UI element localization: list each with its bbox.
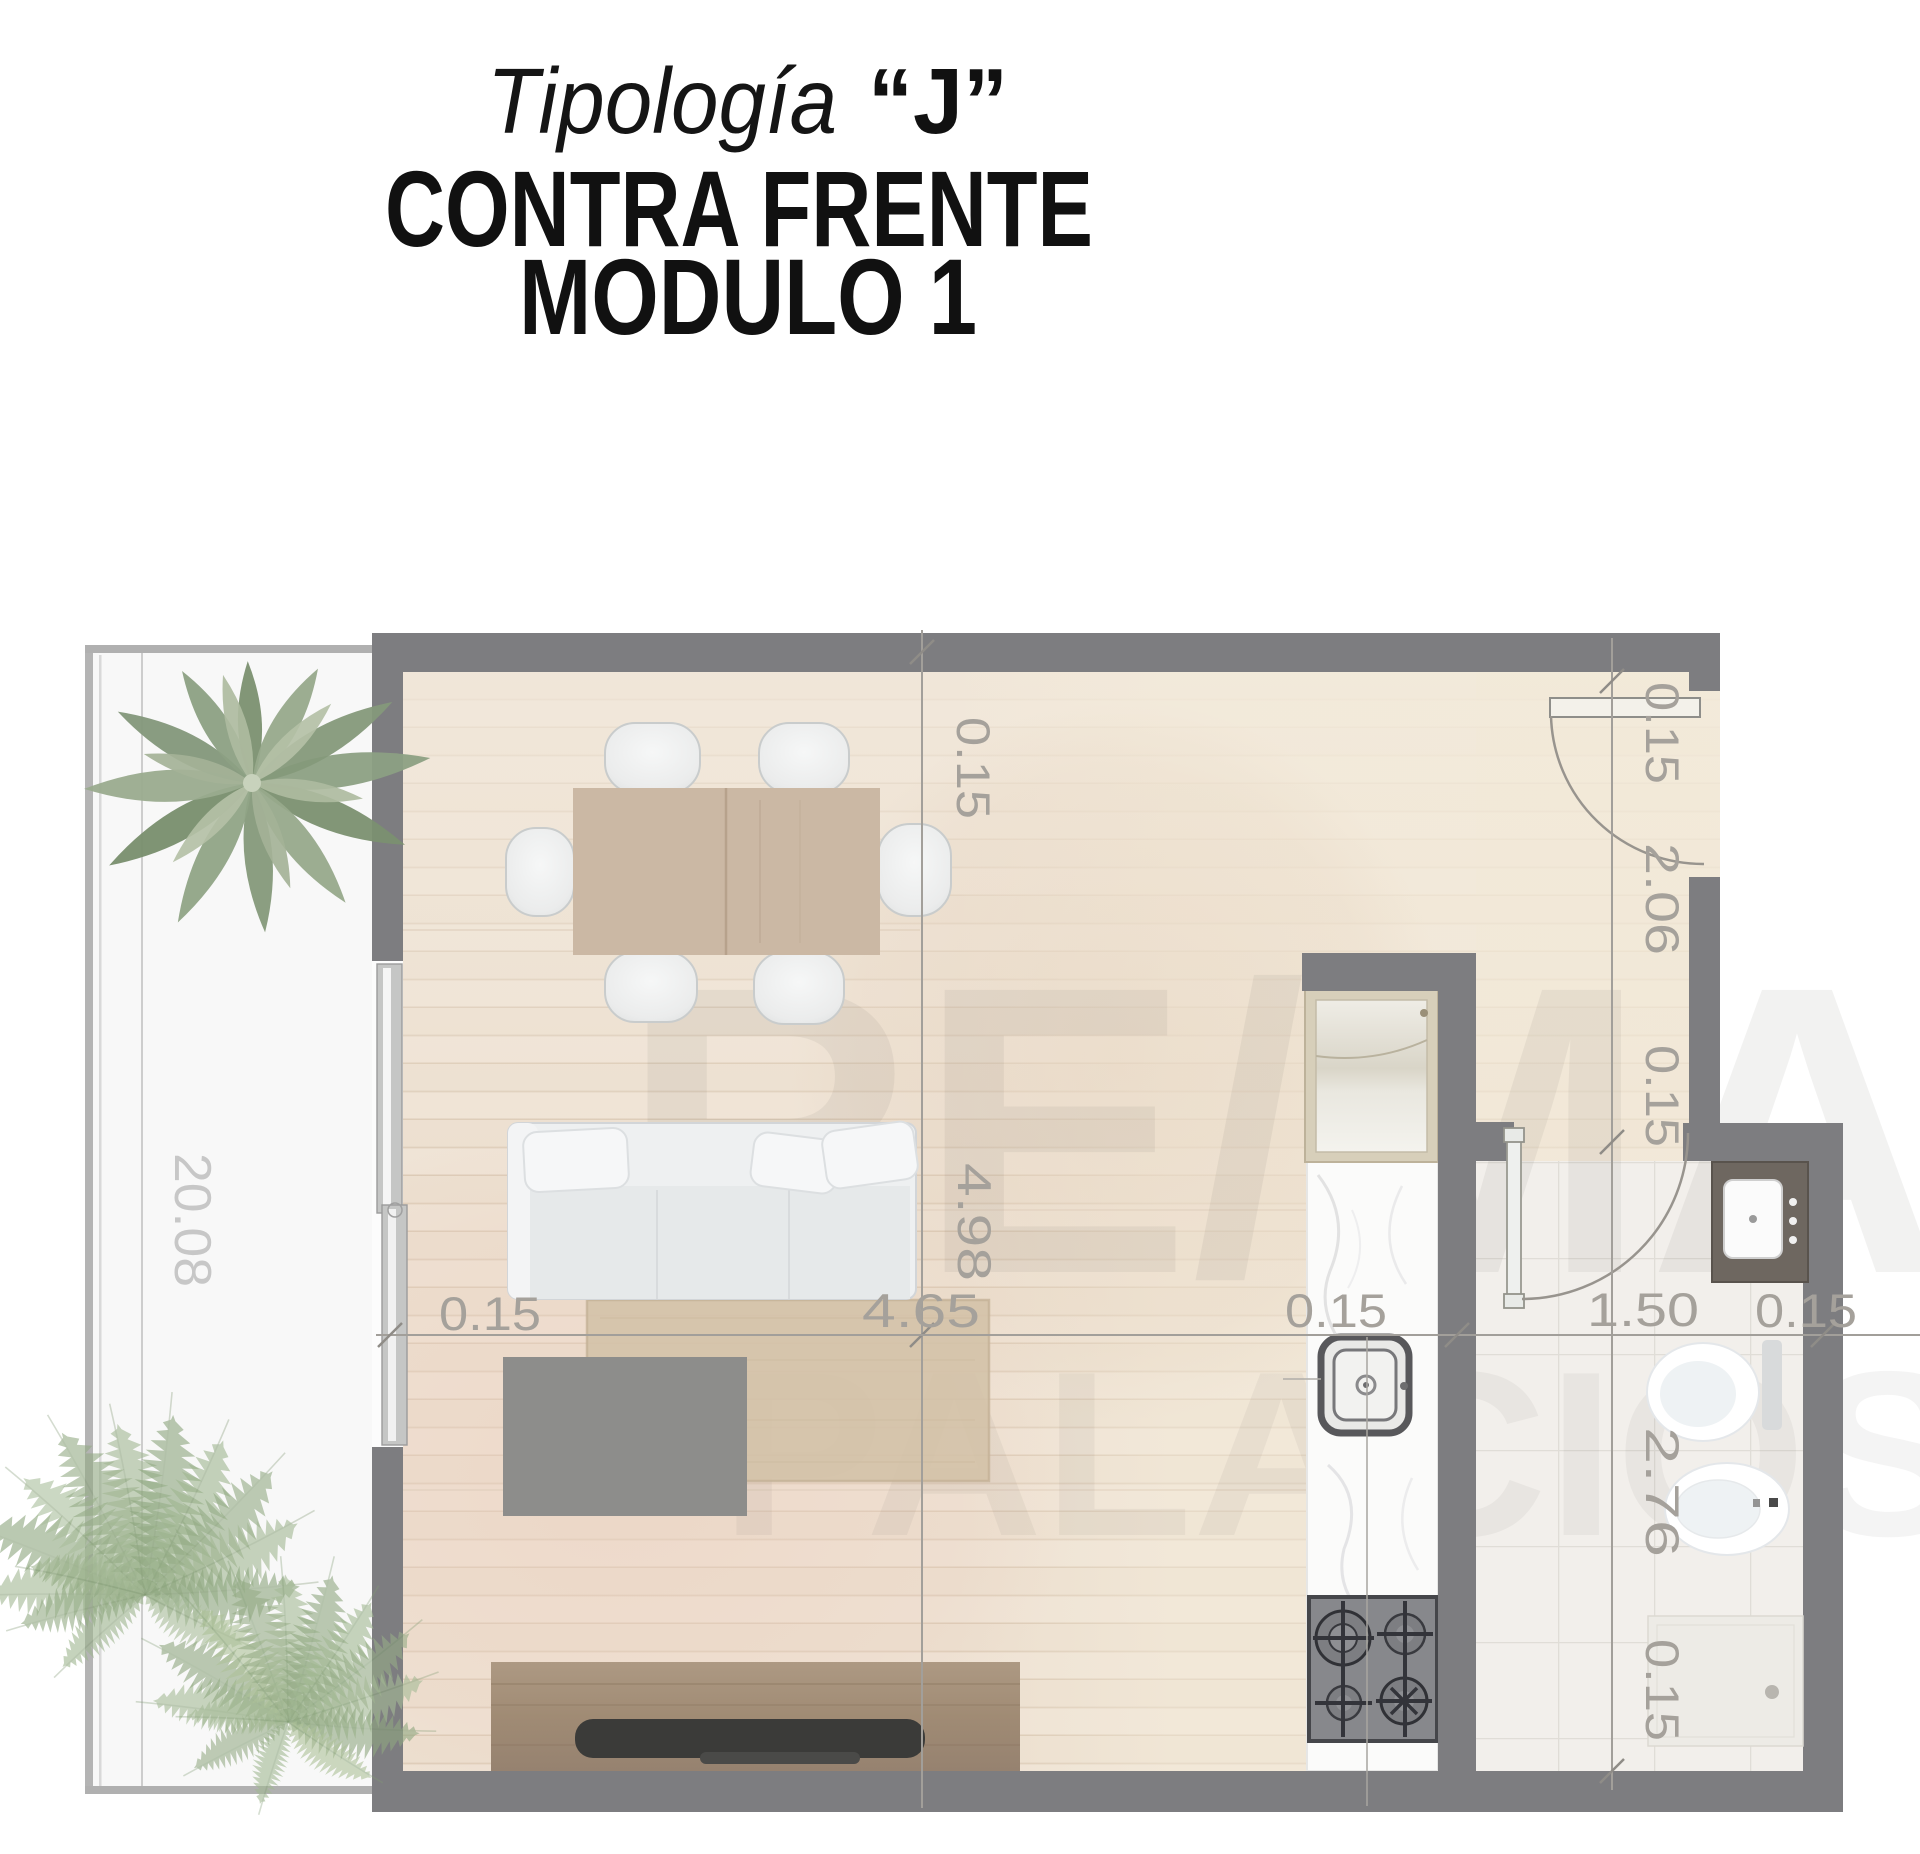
svg-text:2.06: 2.06 xyxy=(1636,843,1689,955)
svg-text:1.50: 1.50 xyxy=(1587,1283,1699,1336)
svg-text:0.15: 0.15 xyxy=(439,1287,541,1340)
svg-text:0.15: 0.15 xyxy=(1636,682,1689,784)
svg-text:4.65: 4.65 xyxy=(862,1284,980,1337)
svg-text:MODULO 1: MODULO 1 xyxy=(519,236,977,357)
svg-text:0.15: 0.15 xyxy=(1755,1284,1857,1337)
svg-text:“J”: “J” xyxy=(868,49,1008,153)
svg-text:20.08: 20.08 xyxy=(163,1153,221,1287)
svg-text:4.98: 4.98 xyxy=(948,1163,1001,1281)
svg-text:0.15: 0.15 xyxy=(947,717,1000,819)
svg-text:0.15: 0.15 xyxy=(1285,1284,1387,1337)
svg-text:Tipología: Tipología xyxy=(487,49,837,153)
svg-text:2.76: 2.76 xyxy=(1636,1427,1689,1557)
svg-text:0.15: 0.15 xyxy=(1636,1045,1689,1147)
svg-text:0.15: 0.15 xyxy=(1636,1639,1689,1741)
